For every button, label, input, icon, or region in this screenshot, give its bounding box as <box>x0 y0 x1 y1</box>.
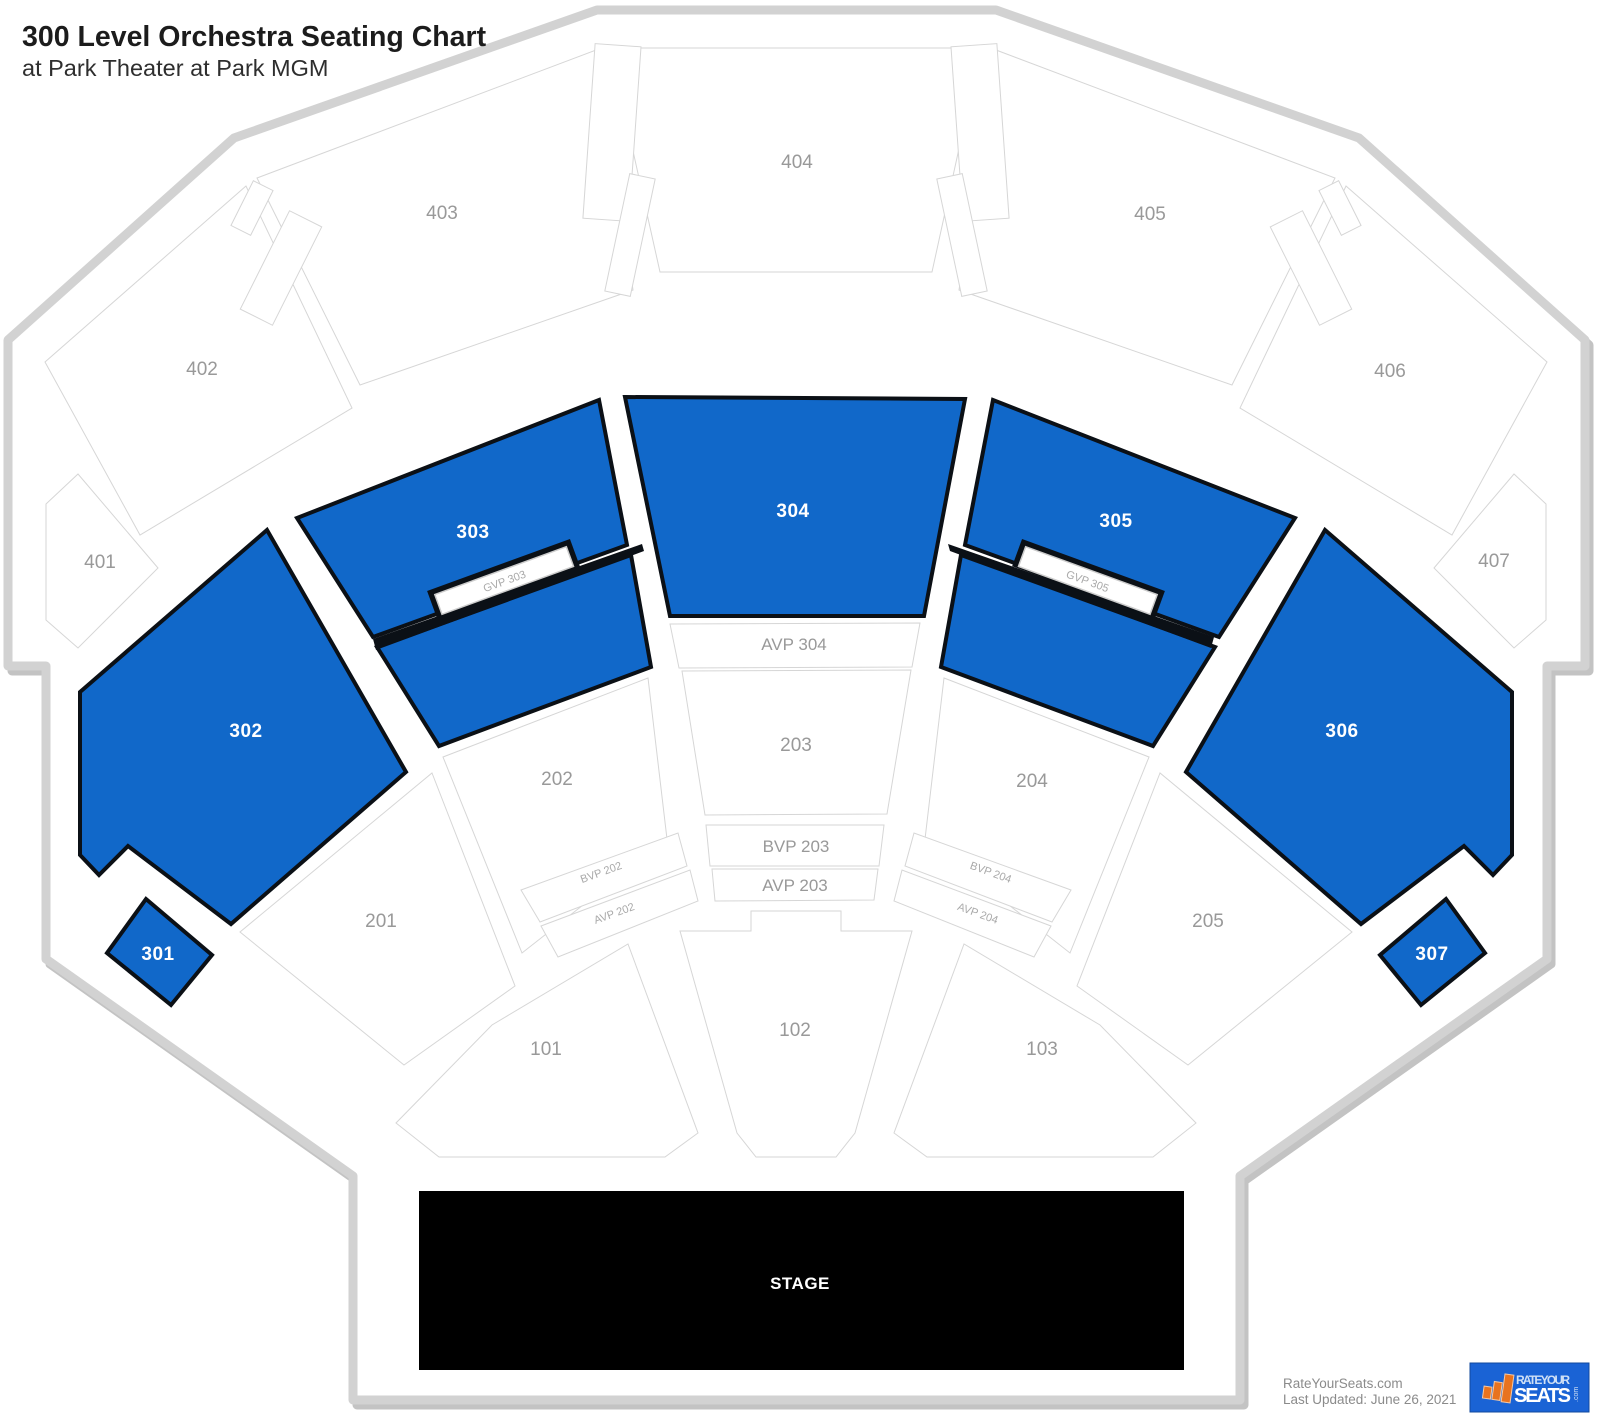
svg-text:.com: .com <box>1573 1387 1580 1402</box>
svg-text:406: 406 <box>1374 361 1406 382</box>
svg-text:403: 403 <box>426 203 458 224</box>
svg-text:AVP 203: AVP 203 <box>762 876 828 895</box>
svg-text:102: 102 <box>779 1020 811 1041</box>
svg-text:202: 202 <box>541 769 573 790</box>
svg-text:Last Updated: June 26, 2021: Last Updated: June 26, 2021 <box>1283 1392 1456 1407</box>
svg-text:101: 101 <box>530 1039 562 1060</box>
svg-text:405: 405 <box>1134 204 1166 225</box>
svg-text:103: 103 <box>1026 1039 1058 1060</box>
svg-text:303: 303 <box>456 522 489 543</box>
svg-text:301: 301 <box>141 944 174 965</box>
svg-text:201: 201 <box>365 911 397 932</box>
svg-text:407: 407 <box>1478 551 1510 572</box>
svg-text:402: 402 <box>186 359 218 380</box>
svg-text:204: 204 <box>1016 771 1048 792</box>
svg-text:307: 307 <box>1415 944 1448 965</box>
svg-text:306: 306 <box>1325 721 1358 742</box>
svg-text:203: 203 <box>780 735 812 756</box>
svg-text:AVP 304: AVP 304 <box>761 635 827 654</box>
svg-text:RateYourSeats.com: RateYourSeats.com <box>1283 1376 1403 1391</box>
svg-text:302: 302 <box>229 721 262 742</box>
svg-text:401: 401 <box>84 552 116 573</box>
svg-text:STAGE: STAGE <box>770 1274 830 1293</box>
svg-text:205: 205 <box>1192 911 1224 932</box>
svg-text:SEATS: SEATS <box>1514 1385 1571 1407</box>
svg-text:404: 404 <box>781 152 813 173</box>
svg-text:300 Level Orchestra Seating Ch: 300 Level Orchestra Seating Chart <box>22 21 487 53</box>
svg-text:at Park Theater at Park MGM: at Park Theater at Park MGM <box>22 55 328 81</box>
svg-text:305: 305 <box>1099 511 1132 532</box>
svg-text:BVP 203: BVP 203 <box>763 837 830 856</box>
svg-text:304: 304 <box>776 501 809 522</box>
